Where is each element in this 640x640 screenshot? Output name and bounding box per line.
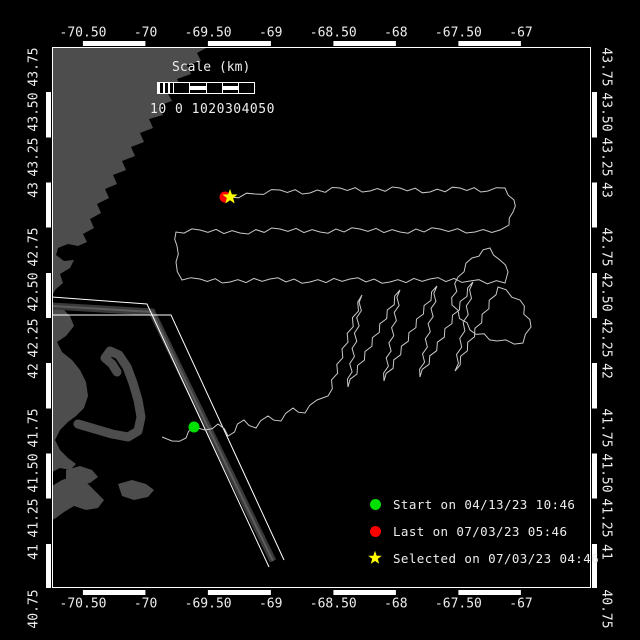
lat-label-left-40.75: 40.75: [27, 589, 42, 628]
scale-bar-cell-5: [239, 83, 254, 93]
border-zebra-top: [52, 41, 591, 46]
lat-label-right-41.50: 41.50: [599, 453, 614, 492]
legend-row-selected: Selected on 07/03/23 04:46: [365, 549, 599, 567]
lon-label-bottom--67.50: -67.50: [435, 597, 482, 612]
legend-last-label: Last on 07/03/23 05:46: [393, 524, 567, 539]
scale-bar-values: 10 0 1020304050: [150, 102, 275, 117]
scale-bar-title: Scale (km): [172, 60, 250, 75]
lat-label-right-41: 41: [599, 544, 614, 560]
lat-label-right-40.75: 40.75: [599, 589, 614, 628]
scale-bar-cell-1: [174, 83, 190, 93]
start-dot-icon: [365, 499, 385, 510]
last-dot-icon: [365, 526, 385, 537]
lat-label-right-41.75: 41.75: [599, 408, 614, 447]
lon-label-bottom--68: -68: [384, 597, 407, 612]
lat-label-left-41: 41: [27, 544, 42, 560]
legend-row-last: Last on 07/03/23 05:46: [365, 522, 567, 540]
lon-label-bottom--68.50: -68.50: [310, 597, 357, 612]
scale-bar-cell-2: [190, 83, 206, 93]
border-zebra-bottom: [52, 590, 591, 595]
lon-label-top--69.50: -69.50: [185, 26, 232, 41]
lon-label-top--69: -69: [259, 26, 282, 41]
lat-label-right-43: 43: [599, 182, 614, 198]
lat-label-left-41.50: 41.50: [27, 453, 42, 492]
lat-label-right-43.25: 43.25: [599, 137, 614, 176]
legend-selected-label: Selected on 07/03/23 04:46: [393, 551, 599, 566]
scale-bar-cell-3: [207, 83, 223, 93]
lon-label-top--70: -70: [134, 26, 157, 41]
border-zebra-left: [46, 47, 51, 588]
lat-label-right-42: 42: [599, 363, 614, 379]
lat-label-left-43.50: 43.50: [27, 92, 42, 131]
lat-label-right-42.75: 42.75: [599, 228, 614, 267]
lat-label-left-41.25: 41.25: [27, 499, 42, 538]
lat-label-left-41.75: 41.75: [27, 408, 42, 447]
border-zebra-right: [592, 47, 597, 588]
lon-label-top--68: -68: [384, 26, 407, 41]
legend-start-label: Start on 04/13/23 10:46: [393, 497, 575, 512]
legend-row-start: Start on 04/13/23 10:46: [365, 495, 575, 513]
lon-label-top--68.50: -68.50: [310, 26, 357, 41]
scale-bar-cell-0: [158, 83, 174, 93]
lon-label-top--67: -67: [509, 26, 532, 41]
lat-label-right-43.75: 43.75: [599, 47, 614, 86]
selected-star-icon: [365, 549, 385, 567]
lon-label-top--67.50: -67.50: [435, 26, 482, 41]
lon-label-bottom--70: -70: [134, 597, 157, 612]
lat-label-left-43.25: 43.25: [27, 137, 42, 176]
lon-label-bottom--67: -67: [509, 597, 532, 612]
lat-label-left-42.50: 42.50: [27, 273, 42, 312]
lat-label-left-42.25: 42.25: [27, 318, 42, 357]
lat-label-right-41.25: 41.25: [599, 499, 614, 538]
lat-label-left-43: 43: [27, 182, 42, 198]
scale-bar: [157, 82, 255, 94]
lat-label-left-42: 42: [27, 363, 42, 379]
lat-label-left-43.75: 43.75: [27, 47, 42, 86]
glider-track-map-screen: -70.50-70.50-70-70-69.50-69.50-69-69-68.…: [0, 0, 640, 640]
lat-label-right-42.50: 42.50: [599, 273, 614, 312]
lat-label-right-42.25: 42.25: [599, 318, 614, 357]
lat-label-right-43.50: 43.50: [599, 92, 614, 131]
scale-bar-cell-4: [223, 83, 239, 93]
lon-label-bottom--70.50: -70.50: [60, 597, 107, 612]
lon-label-bottom--69.50: -69.50: [185, 597, 232, 612]
lon-label-top--70.50: -70.50: [60, 26, 107, 41]
lon-label-bottom--69: -69: [259, 597, 282, 612]
lat-label-left-42.75: 42.75: [27, 228, 42, 267]
